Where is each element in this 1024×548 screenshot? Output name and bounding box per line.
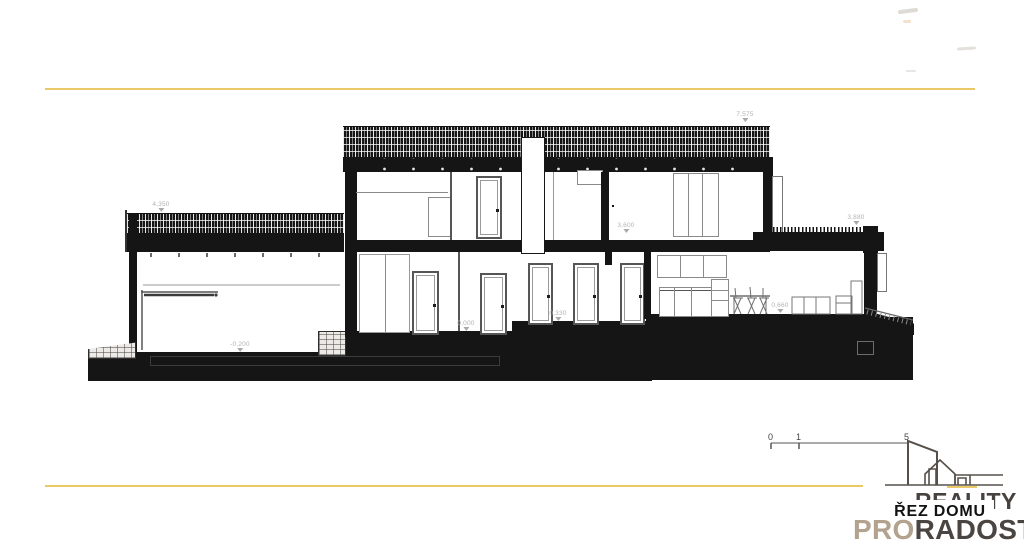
- elevation-value: 4,350: [152, 201, 169, 208]
- kitchen-wall: [644, 252, 651, 319]
- elevation-value: 0,660: [771, 302, 788, 309]
- ground-door-1: [412, 271, 439, 335]
- elevation-value: 7,575: [736, 111, 753, 118]
- scale-tick-5: 5: [904, 432, 909, 442]
- upper-partition: [450, 172, 452, 240]
- closet-divider: [385, 255, 386, 332]
- upper-wall-line: [356, 192, 448, 193]
- elevation-label-upper-floor: 3,600: [617, 222, 634, 236]
- elevation-value: 3,880: [847, 214, 864, 221]
- upper-door: [476, 176, 502, 239]
- wardrobe-divider: [688, 174, 689, 236]
- upper-int-wall: [601, 172, 609, 240]
- elevation-value: 3,600: [617, 222, 634, 229]
- shelf-line: [712, 290, 728, 291]
- stone-ramp: [88, 341, 136, 359]
- level-marker-icon: [742, 118, 748, 125]
- garage-left-wall: [129, 213, 137, 352]
- low-roof-end-cap: [863, 226, 878, 253]
- elevation-label-main-roof: 7,575: [736, 111, 753, 125]
- dining-set: [730, 287, 770, 314]
- chimney: [521, 137, 545, 254]
- section-drawing: 0 1 5 4,350 7,575 3,600 3,880 0,000 0,33…: [0, 0, 1024, 548]
- upper-partition: [553, 172, 554, 240]
- elevation-label-garage-floor: -0,200: [230, 341, 250, 355]
- elevation-label-hall-step: 0,330: [549, 310, 566, 324]
- brand-word-proradost: PRORADOST: [853, 514, 1024, 546]
- cabinet-divider: [703, 256, 704, 277]
- interstorey-slab: [345, 240, 770, 252]
- countertop-line: [660, 290, 713, 291]
- scale-bar: 0 1 5: [768, 432, 909, 449]
- chair: [759, 288, 769, 314]
- cabinet-divider: [674, 288, 675, 316]
- shelf-line: [712, 300, 728, 301]
- upper-wardrobe: [673, 173, 719, 237]
- sofa-sideboard: [792, 281, 862, 314]
- ground-door-2: [480, 273, 507, 335]
- kitchen-tall-unit: [711, 279, 729, 317]
- door-handle-dot: [612, 205, 614, 207]
- chair: [747, 287, 757, 314]
- brand-word-radost: RADOST: [915, 514, 1024, 545]
- garage-eave-ticks: [150, 253, 340, 257]
- stone-pier: [318, 331, 346, 356]
- lintel-wall: [605, 252, 612, 265]
- logo-skyline-icon: [885, 441, 1003, 485]
- foundation-hairline: [150, 356, 500, 366]
- scale-tick-1: 1: [796, 432, 801, 442]
- level-marker-icon: [158, 208, 164, 215]
- chair: [733, 288, 743, 314]
- ground-door-5: [620, 263, 645, 325]
- bottom-accent-rule: [45, 485, 863, 487]
- level-marker-icon: [237, 348, 243, 355]
- elevation-label-ground-floor: 0,000: [457, 320, 474, 334]
- ground-closet: [359, 254, 410, 333]
- level-marker-icon: [463, 327, 469, 334]
- upper-closet: [428, 197, 452, 237]
- garage-roof-tiles: [127, 213, 344, 235]
- exterior-pilaster: [877, 253, 887, 292]
- cabinet-divider: [680, 256, 681, 277]
- brand-word-pro: PRO: [853, 514, 915, 545]
- level-marker-icon: [777, 309, 783, 316]
- living-right-wall: [864, 251, 877, 318]
- garage-roof-fascia: [127, 233, 344, 252]
- elevation-label-low-roof: 3,880: [847, 214, 864, 228]
- wardrobe-divider: [702, 174, 703, 236]
- level-marker-icon: [853, 221, 859, 228]
- cabinet-divider: [691, 288, 692, 316]
- blueprint-canvas: 0 1 5 4,350 7,575 3,600 3,880 0,000 0,33…: [0, 0, 1024, 548]
- kitchen-counter: [659, 287, 714, 317]
- drain-box-outline: [857, 341, 874, 355]
- elevation-value: 0,000: [457, 320, 474, 327]
- elevation-value: -0,200: [230, 341, 250, 348]
- upper-niche: [577, 170, 603, 185]
- scale-tick-0: 0: [768, 432, 773, 442]
- main-roof-tiles: [343, 126, 770, 159]
- elevation-label-garage-roof: 4,350: [152, 201, 169, 215]
- level-marker-icon: [555, 317, 561, 324]
- level-marker-icon: [623, 229, 629, 236]
- kitchen-upper-cabinets: [657, 255, 727, 278]
- rafter-anchor-icons: [358, 158, 758, 171]
- elevation-label-living-floor: 0,660: [771, 302, 788, 316]
- ground-door-4: [573, 263, 599, 325]
- elevation-value: 0,330: [549, 310, 566, 317]
- upper-parapet: [772, 176, 783, 233]
